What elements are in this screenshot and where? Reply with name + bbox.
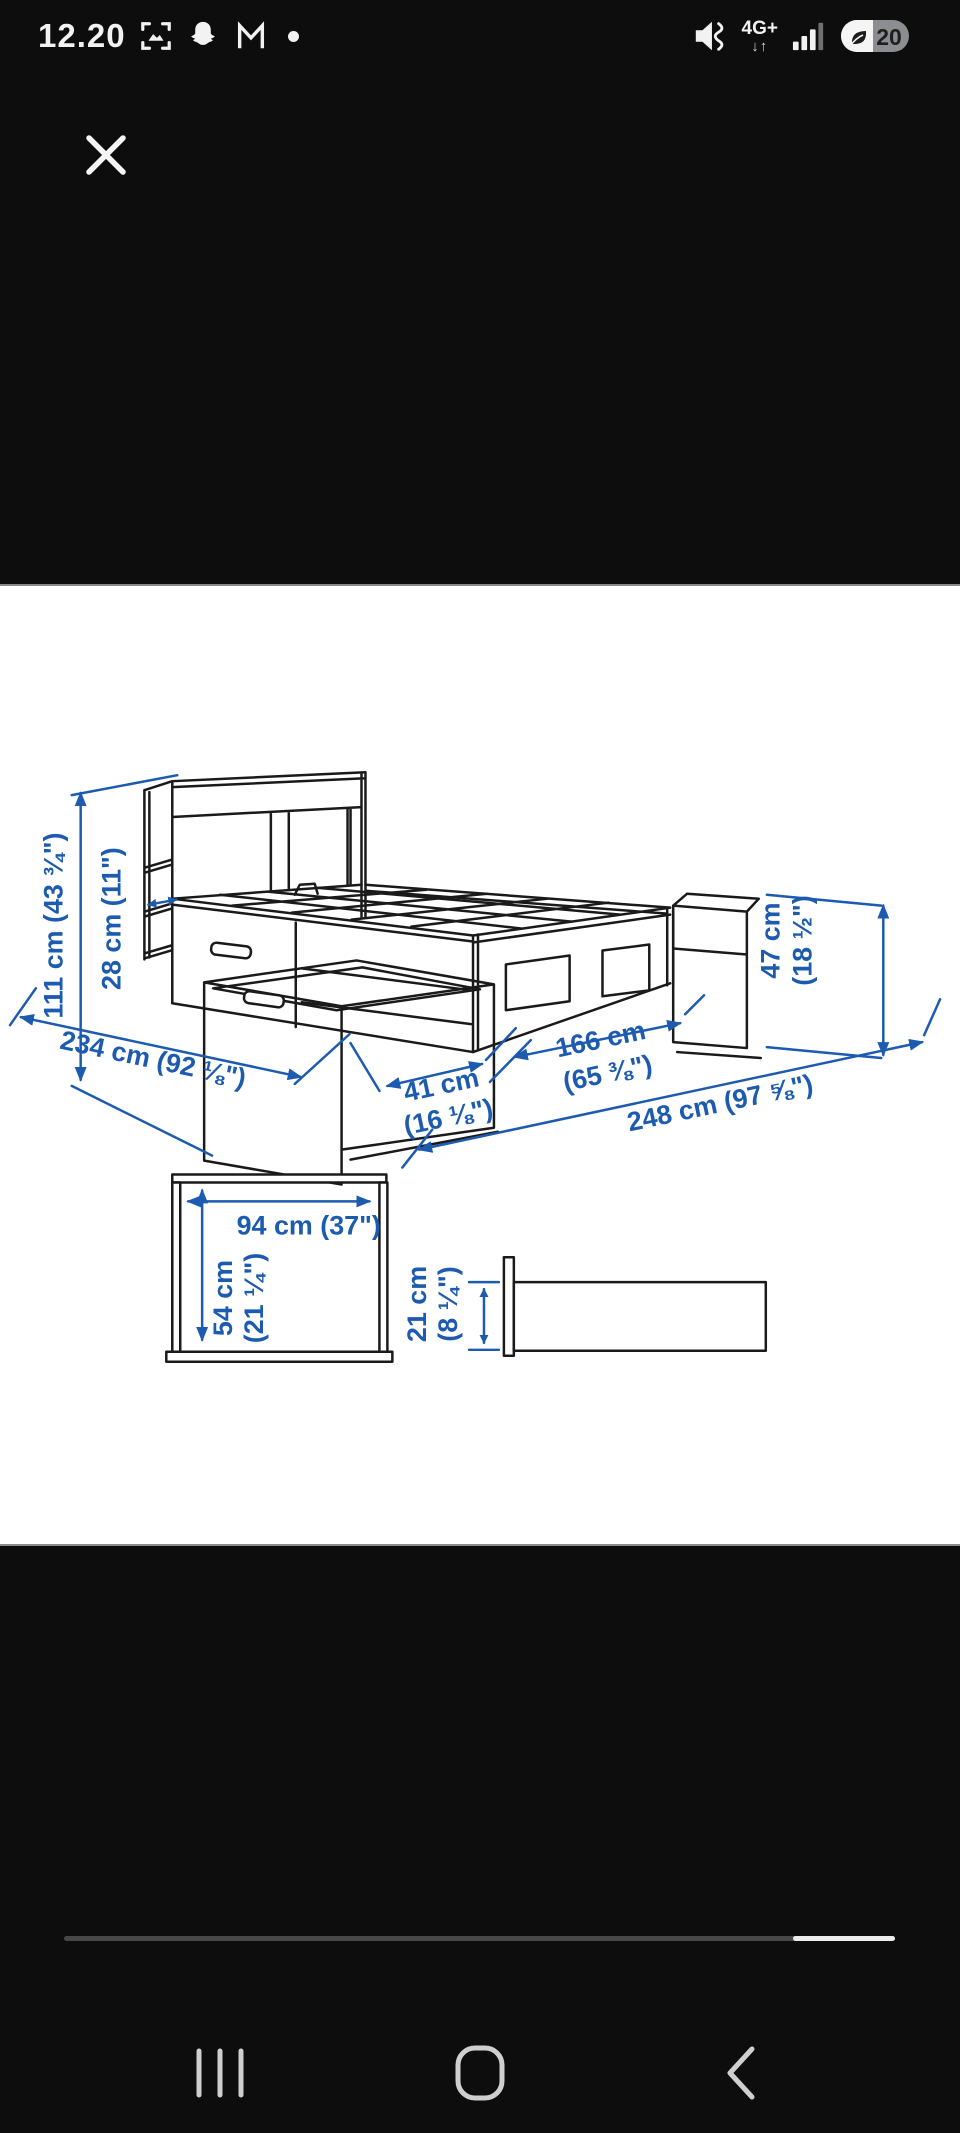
network-activity-arrows: ↓↑ [751, 39, 768, 54]
dim-label-side-height-cm: 47 cm [756, 902, 786, 978]
phone-screen: 12.20 [0, 0, 960, 2133]
dim-label-total-length: 234 cm (92 ⅛") [58, 1025, 249, 1094]
image-scrollbar[interactable] [64, 1936, 895, 1941]
headboard-shelf-strip [144, 781, 172, 959]
footboard-panels [506, 945, 649, 1011]
signal-bars-icon [790, 19, 828, 53]
recents-icon [189, 2043, 251, 2103]
dim-label-drawer-height-cm: 21 cm [402, 1266, 432, 1342]
close-icon [74, 123, 138, 187]
dim-label-side-height-in: (18 ½") [788, 895, 818, 985]
status-bar: 12.20 [0, 0, 960, 72]
product-dimension-image[interactable]: 111 cm (43 ¾") 28 cm (11") 234 cm (92 ⅛"… [0, 584, 960, 1546]
dim-label-total-width: 248 cm (97 ⅝") [625, 1069, 816, 1138]
home-button[interactable] [410, 2023, 550, 2123]
open-drawer-handle [243, 991, 284, 1008]
mute-vibrate-icon [692, 16, 730, 56]
snapchat-icon [186, 19, 220, 53]
bed-dimension-drawing: 111 cm (43 ¾") 28 cm (11") 234 cm (92 ⅛"… [0, 586, 956, 1544]
dim-label-storage-height-cm: 54 cm [208, 1260, 238, 1336]
screenshot-icon [139, 19, 173, 53]
back-button[interactable] [670, 2023, 810, 2123]
dim-label-storage-height-in: (21 ¼") [239, 1253, 269, 1343]
network-indicator: 4G+ ↓↑ [742, 19, 778, 54]
close-button[interactable] [74, 123, 138, 187]
home-icon [453, 2043, 507, 2103]
network-type-label: 4G+ [742, 19, 778, 38]
dim-label-headboard-depth: 28 cm (11") [96, 847, 126, 990]
back-icon [720, 2043, 760, 2103]
battery-percent-text: 20 [876, 24, 902, 50]
gmail-icon [233, 19, 269, 53]
dim-label-drawer-height-in: (8 ¼") [433, 1266, 463, 1341]
image-scrollbar-thumb[interactable] [793, 1936, 895, 1941]
android-nav-bar [0, 2013, 960, 2133]
far-side-drawer [673, 894, 761, 1058]
status-bar-right: 4G+ ↓↑ 20 [692, 0, 910, 72]
status-bar-left: 12.20 [38, 0, 299, 72]
dim-label-total-height: 111 cm (43 ¾") [39, 833, 69, 1019]
clock: 12.20 [38, 17, 126, 55]
dim-label-storage-width: 94 cm (37") [237, 1210, 381, 1240]
drawer-profile-drawing [504, 1257, 766, 1356]
notification-dot [288, 31, 299, 42]
recents-button[interactable] [150, 2023, 290, 2123]
closed-drawer-handle [211, 942, 252, 959]
battery-indicator: 20 [840, 19, 910, 53]
